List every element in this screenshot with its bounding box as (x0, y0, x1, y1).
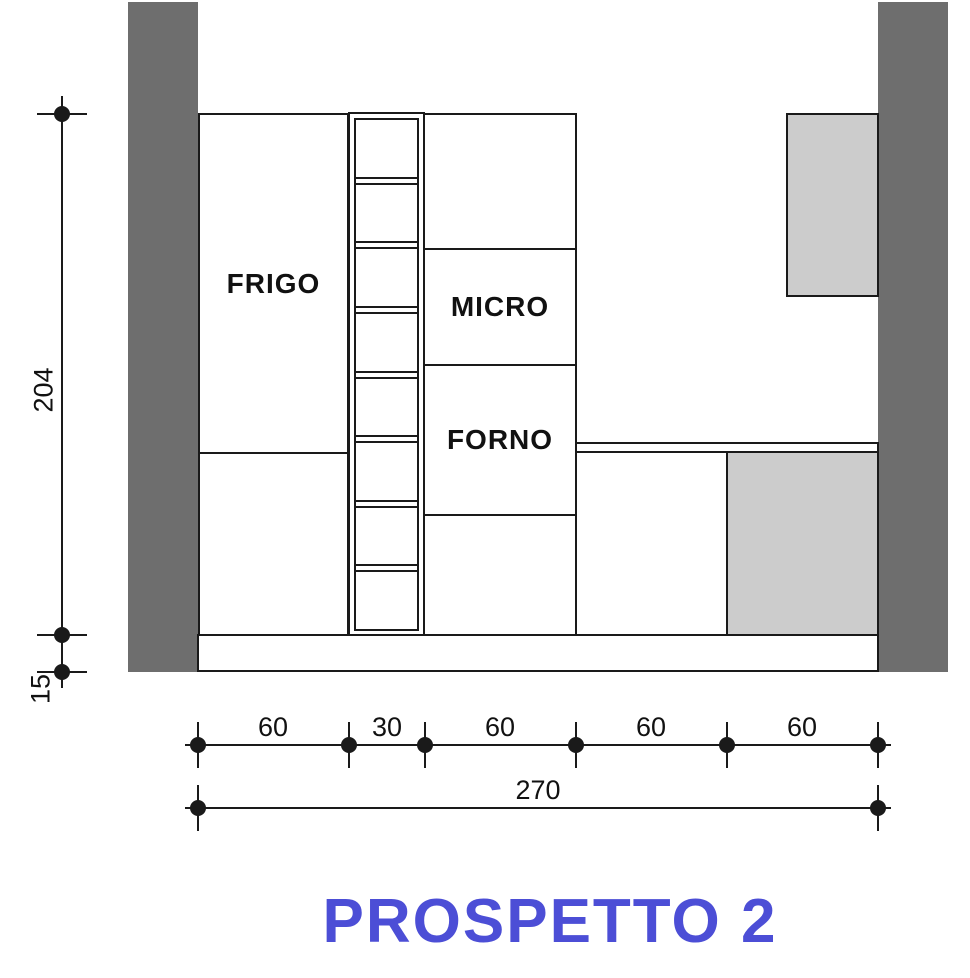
dim-dot (417, 737, 433, 753)
microwave-cabinet: MICRO (423, 248, 577, 366)
upper-cabinet-center (423, 113, 577, 250)
shelf-compartment (356, 443, 417, 500)
shelf-board (356, 177, 417, 185)
total-dim-line (185, 807, 891, 809)
shelf-board (356, 241, 417, 249)
dim-dot (190, 737, 206, 753)
oven-label: FORNO (447, 424, 553, 456)
plinth (197, 634, 879, 672)
dim-dot (190, 800, 206, 816)
microwave-label: MICRO (451, 291, 549, 323)
shelf-board (356, 564, 417, 572)
shelf-unit (348, 112, 425, 637)
drawing-title: PROSPETTO 2 (323, 886, 778, 957)
shelf-compartment (356, 249, 417, 306)
segment-dim-label: 60 (485, 712, 515, 743)
plinth-dim-label: 15 (26, 674, 57, 704)
shelf-compartment (356, 572, 417, 629)
segment-dim-label: 60 (636, 712, 666, 743)
segment-dim-label: 60 (787, 712, 817, 743)
fridge-cabinet-lower (198, 452, 349, 636)
dim-dot (719, 737, 735, 753)
dim-dot (54, 627, 70, 643)
shelf-board (356, 306, 417, 314)
height-dim-label: 204 (29, 367, 60, 412)
fridge-label: FRIGO (227, 268, 321, 300)
shelf-compartment (356, 314, 417, 371)
total-dim-label: 270 (515, 775, 560, 806)
shelf-compartment (356, 379, 417, 436)
dim-dot (870, 800, 886, 816)
dim-dot (870, 737, 886, 753)
lower-cabinet-center (423, 514, 577, 636)
wall-cabinet-right (786, 113, 879, 297)
vertical-dim-line (61, 96, 63, 688)
dim-dot (341, 737, 357, 753)
segment-dim-label: 30 (372, 712, 402, 743)
shelf-compartment (356, 120, 417, 177)
base-cabinet-mid (575, 451, 728, 636)
fridge-cabinet-upper: FRIGO (198, 113, 349, 454)
dim-dot (54, 106, 70, 122)
oven-cabinet: FORNO (423, 364, 577, 516)
left-wall (128, 2, 198, 672)
shelf-unit-inner (354, 118, 419, 631)
segment-dim-label: 60 (258, 712, 288, 743)
shelf-compartment (356, 185, 417, 242)
base-cabinet-appliance (726, 451, 879, 636)
segment-dim-line (185, 744, 891, 746)
shelf-compartment (356, 508, 417, 565)
shelf-board (356, 500, 417, 508)
elevation-drawing: FRIGO MICRO FORNO 204 15 60 30 60 60 60 (0, 0, 970, 978)
shelf-board (356, 435, 417, 443)
dim-dot (568, 737, 584, 753)
right-wall (878, 2, 948, 672)
shelf-board (356, 371, 417, 379)
